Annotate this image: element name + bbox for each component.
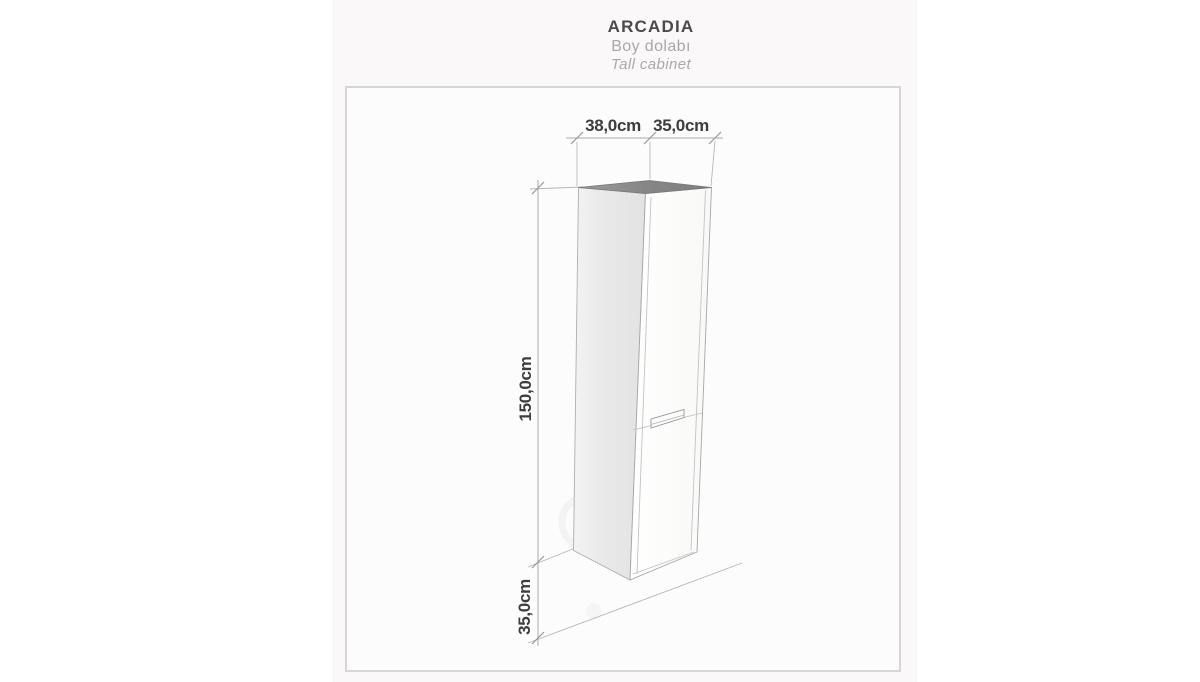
subtitle-english: Tall cabinet bbox=[608, 56, 695, 74]
dim-label-height: 150,0cm bbox=[516, 356, 535, 421]
dim-label-bottom-depth: 35,0cm bbox=[515, 579, 534, 635]
dim-label-depth: 38,0cm bbox=[585, 116, 641, 135]
ext-top-right bbox=[711, 141, 715, 186]
cabinet bbox=[574, 181, 712, 581]
page: ARCADIA Boy dolabı Tall cabinet bbox=[0, 0, 1200, 682]
cabinet-dimension-drawing: 38,0cm 35,0cm 150,0cm 35,0cm bbox=[0, 0, 1200, 682]
product-header: ARCADIA Boy dolabı Tall cabinet bbox=[608, 16, 695, 74]
dim-label-width: 35,0cm bbox=[653, 116, 709, 135]
subtitle-turkish: Boy dolabı bbox=[608, 37, 695, 56]
brand-title: ARCADIA bbox=[608, 16, 695, 37]
